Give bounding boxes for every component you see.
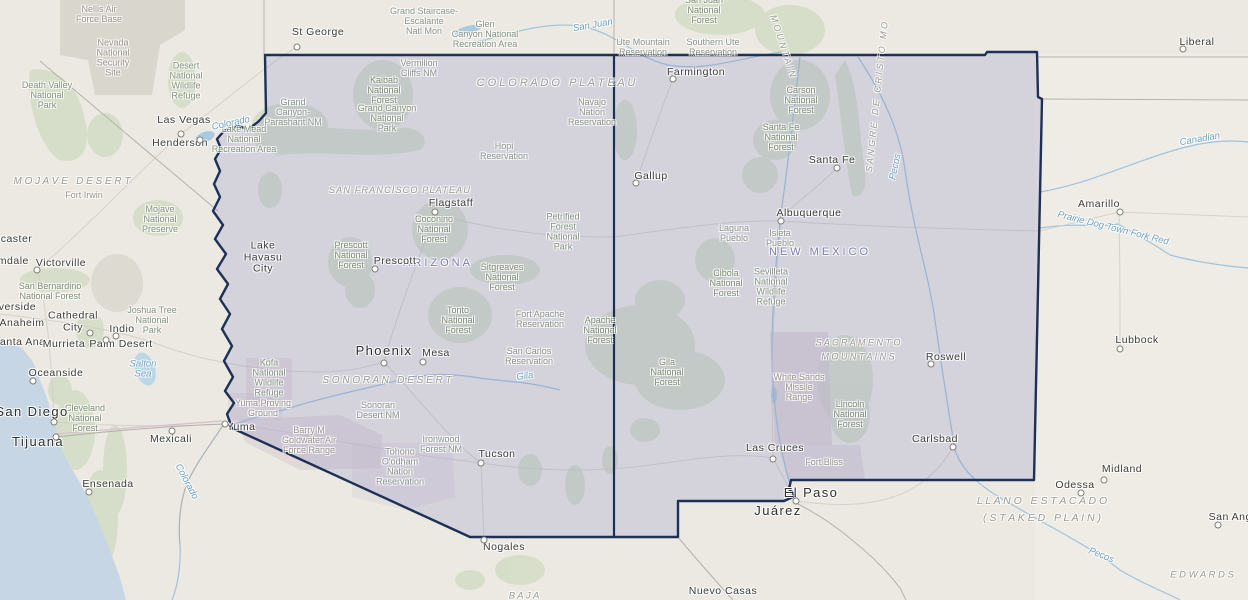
map-canvas[interactable]: Nellis Air Force BaseNevada National Sec… (0, 0, 1248, 600)
texas-tint (1035, 53, 1248, 600)
basemap (0, 0, 1248, 600)
highlighted-states-overlay (213, 52, 1042, 537)
